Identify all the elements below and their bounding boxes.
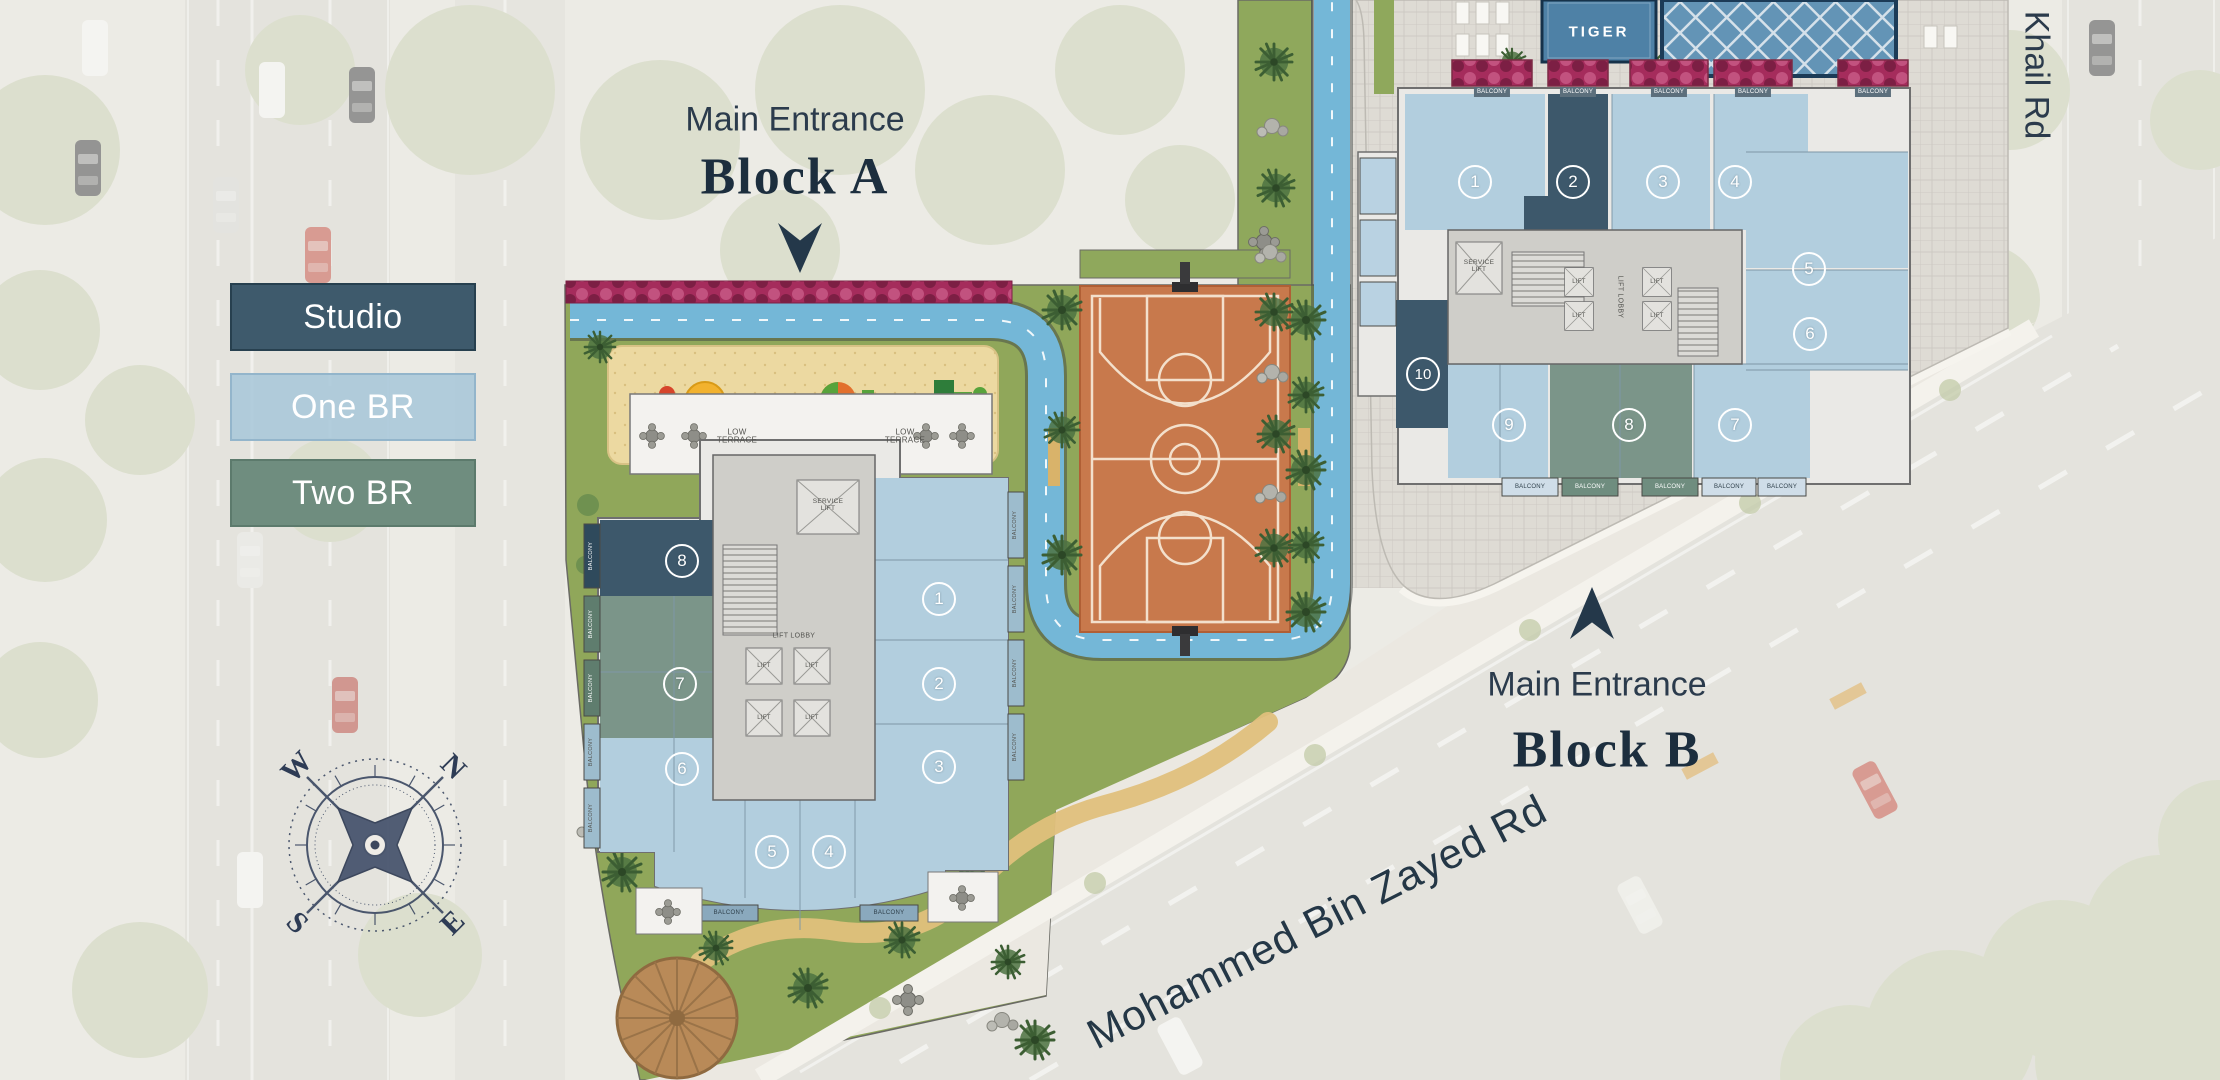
unit-marker-a2[interactable]: 2 [922,667,956,701]
balcony-label: BALCONY [1575,484,1605,490]
balcony-label: BALCONY [1013,659,1019,687]
balcony-label: BALCONY [589,610,595,638]
site-plan-page: Studio One BR Two BR Main Entrance Block… [0,0,2220,1080]
unit-marker-b6[interactable]: 6 [1793,317,1827,351]
balcony-label: BALCONY [1560,87,1596,97]
balcony-label: BALCONY [1515,484,1545,490]
service-lift-label: SERVICE LIFT [1461,260,1497,274]
lift-lobby-label: LIFT LOBBY [773,632,816,639]
unit-marker-b4[interactable]: 4 [1718,165,1752,199]
balcony-label: BALCONY [1855,87,1891,97]
unit-marker-b10[interactable]: 10 [1406,357,1440,391]
block-a-entrance-label: Main Entrance [685,101,904,140]
balcony-label: BALCONY [589,804,595,832]
low-terrace-label: LOW TERRACE [877,429,933,446]
unit-marker-b8[interactable]: 8 [1612,408,1646,442]
unit-marker-b9[interactable]: 9 [1492,408,1526,442]
lift-label: LIFT [1650,313,1664,319]
balcony-label: BALCONY [1651,87,1687,97]
lift-label: LIFT [805,715,819,721]
unit-marker-b3[interactable]: 3 [1646,165,1680,199]
block-b-entrance-label: Main Entrance [1487,666,1706,705]
unit-marker-b1[interactable]: 1 [1458,165,1492,199]
balcony-label: BALCONY [1013,733,1019,761]
lift-lobby-label: LIFT LOBBY [1616,276,1623,319]
balcony-label: BALCONY [714,910,745,916]
legend-item-two-br[interactable]: Two BR [230,459,476,527]
unit-marker-a3[interactable]: 3 [922,750,956,784]
pool-brand-label: TIGER [1569,24,1630,41]
balcony-label: BALCONY [1655,484,1685,490]
unit-marker-a7[interactable]: 7 [663,667,697,701]
unit-marker-a6[interactable]: 6 [665,752,699,786]
balcony-label: BALCONY [1013,585,1019,613]
lift-label: LIFT [757,715,771,721]
lift-label: LIFT [1572,279,1586,285]
legend-item-one-br[interactable]: One BR [230,373,476,441]
unit-marker-a1[interactable]: 1 [922,582,956,616]
block-b-title: Block B [1513,721,1702,780]
lift-label: LIFT [757,663,771,669]
service-lift-label: SERVICE LIFT [808,499,848,513]
lift-label: LIFT [1572,313,1586,319]
balcony-label: BALCONY [1735,87,1771,97]
unit-marker-a5[interactable]: 5 [755,835,789,869]
low-terrace-label: LOW TERRACE [709,429,765,446]
unit-marker-a8[interactable]: 8 [665,544,699,578]
balcony-label: BALCONY [1714,484,1744,490]
unit-marker-b5[interactable]: 5 [1792,252,1826,286]
balcony-label: BALCONY [589,738,595,766]
flower-hedge [566,281,1012,303]
site-plan-graphic [0,0,2220,1080]
balcony-label: BALCONY [589,674,595,702]
balcony-label: BALCONY [589,542,595,570]
balcony-label: BALCONY [1767,484,1797,490]
unit-marker-b7[interactable]: 7 [1718,408,1752,442]
legend-item-studio[interactable]: Studio [230,283,476,351]
lift-label: LIFT [1650,279,1664,285]
lift-label: LIFT [805,663,819,669]
road-label-khail: Khail Rd [2017,11,2056,140]
unit-marker-b2[interactable]: 2 [1556,165,1590,199]
block-a-title: Block A [701,148,890,207]
balcony-label: BALCONY [1013,511,1019,539]
balcony-label: BALCONY [874,910,905,916]
unit-marker-a4[interactable]: 4 [812,835,846,869]
balcony-label: BALCONY [1474,87,1510,97]
